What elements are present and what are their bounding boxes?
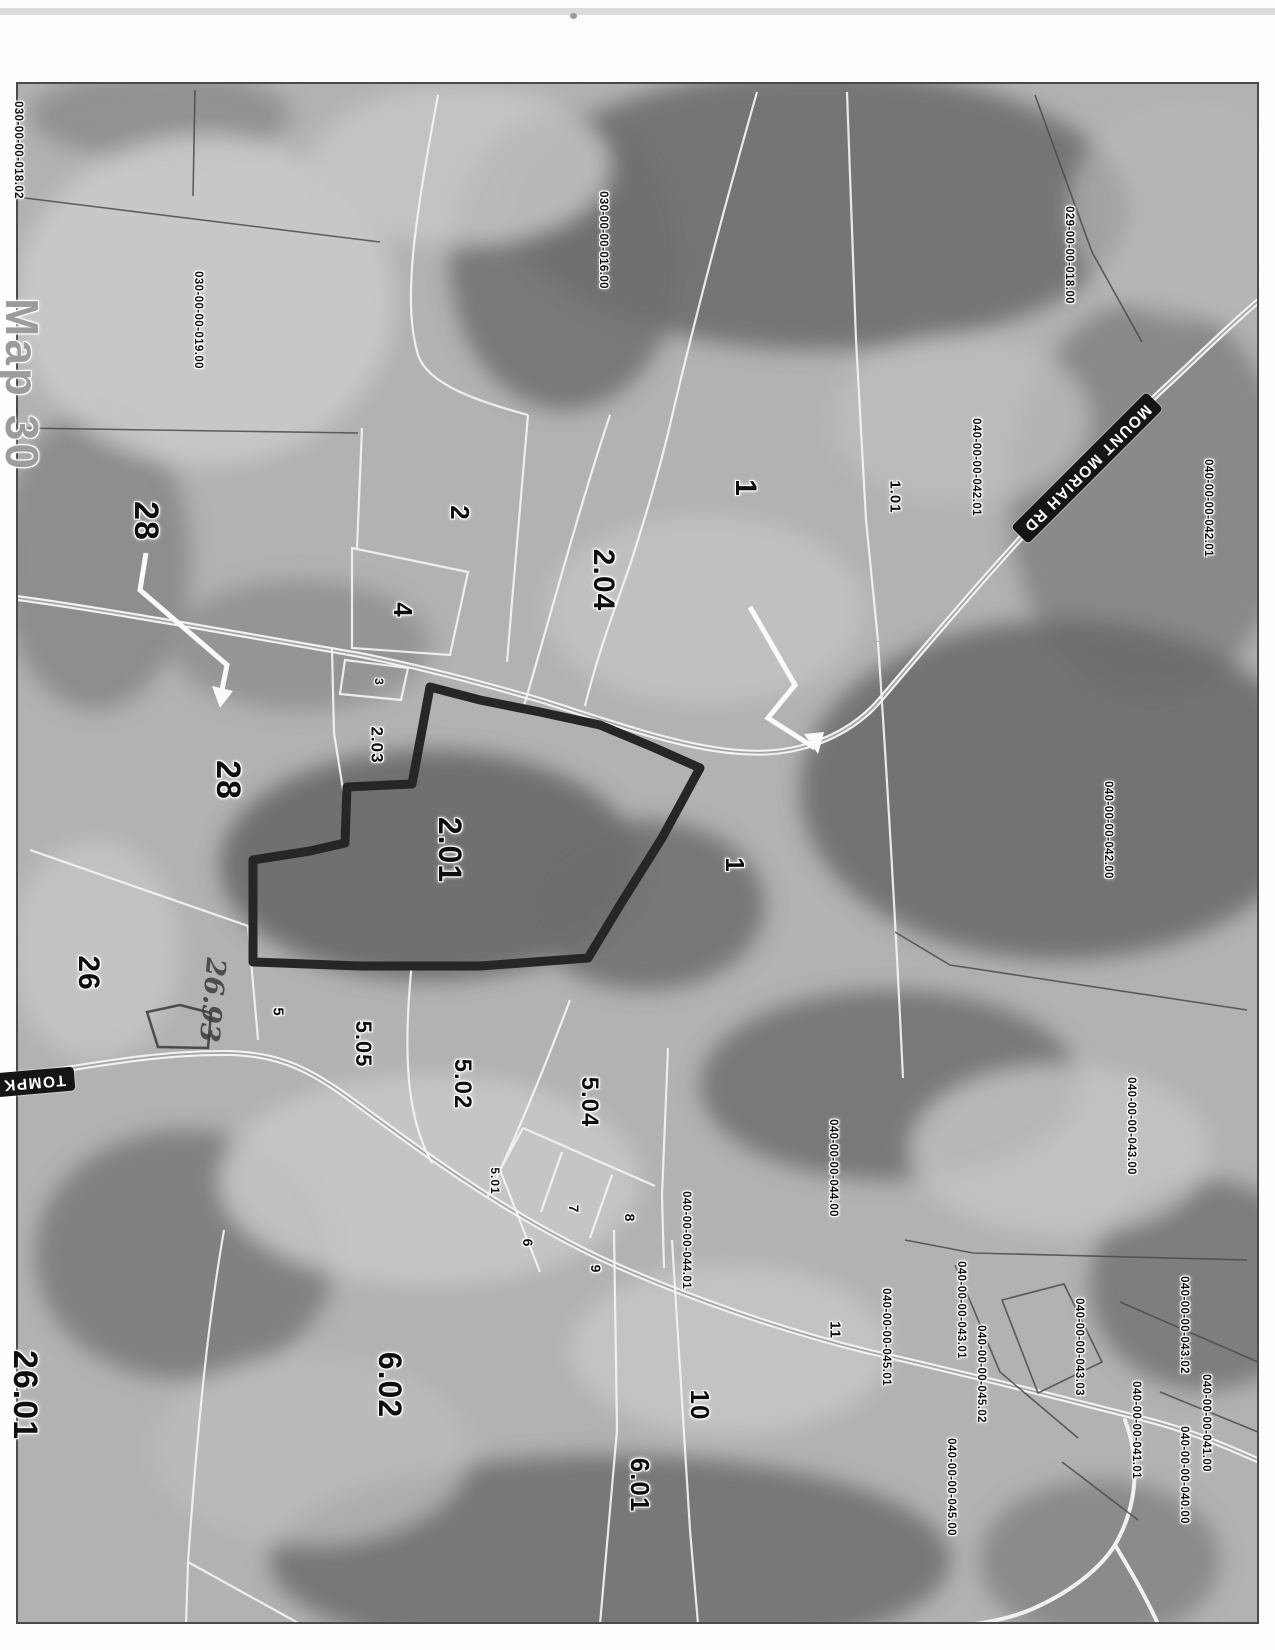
parcel-number-26: 26 [73,955,103,990]
parcel-id-040-00-00-045-00: 040-00-00-045.00 [944,1438,956,1536]
parcel-id-040-00-00-043-00: 040-00-00-043.00 [1124,1077,1136,1175]
parcel-number-2-03: 2.03 [369,726,386,763]
parcel-id-030-00-00-019-00: 030-00-00-019.00 [191,271,203,369]
parcel-number-5-01: 5.01 [489,1167,501,1194]
parcel-number-2-01: 2.01 [434,817,466,883]
parcel-number-7: 7 [567,1205,581,1214]
parcel-number-11: 11 [828,1321,843,1339]
parcel-number-26-01: 26.01 [8,1350,42,1440]
parcel-number-6-02: 6.02 [374,1352,406,1418]
parcel-id-040-00-00-041-01: 040-00-00-041.01 [1129,1381,1141,1479]
parcel-number-8: 8 [623,1214,637,1223]
parcel-id-040-00-00-040-00: 040-00-00-040.00 [1177,1426,1189,1524]
aerial-photo-map [0,0,1275,1650]
map-sheet-title: Map 30 [0,298,49,472]
parcel-number-5-05: 5.05 [352,1021,374,1068]
parcel-id-030-00-00-016-00: 030-00-00-016.00 [596,191,608,289]
parcel-id-040-00-00-042-00: 040-00-00-042.00 [1101,781,1113,879]
parcel-number-3: 3 [373,678,385,686]
parcel-number-5-02: 5.02 [450,1059,474,1110]
parcel-number-4: 4 [390,602,416,617]
parcel-id-040-00-00-045-01: 040-00-00-045.01 [879,1288,891,1386]
parcel-number-1-01: 1.01 [888,480,903,513]
parcel-id-040-00-00-044-01: 040-00-00-044.01 [679,1191,691,1289]
parcel-id-040-00-00-042-01: 040-00-00-042.01 [1201,459,1213,557]
parcel-id-040-00-00-043-02: 040-00-00-043.02 [1177,1276,1189,1374]
parcel-number-1: 1 [722,857,748,872]
parcel-id-040-00-00-042-01: 040-00-00-042.01 [969,418,981,516]
parcel-id-040-00-00-045-02: 040-00-00-045.02 [974,1325,986,1423]
parcel-number-2-04: 2.04 [588,549,618,611]
parcel-number-28: 28 [129,501,163,541]
parcel-number-5: 5 [271,1007,286,1016]
parcel-number-1: 1 [730,479,760,497]
parcel-id-040-00-00-043-01: 040-00-00-043.01 [954,1261,966,1359]
parcel-number-28: 28 [211,760,245,800]
scanned-parcel-map-page: Map 30 MOUNT MORIAH RD TOMPK 26.93 030-0… [0,0,1275,1650]
parcel-number-6: 6 [521,1239,535,1248]
parcel-number-10: 10 [687,1390,713,1421]
parcel-id-040-00-00-041-00: 040-00-00-041.00 [1199,1374,1211,1472]
parcel-id-040-00-00-043-03: 040-00-00-043.03 [1072,1298,1084,1396]
parcel-number-9: 9 [589,1265,603,1274]
parcel-number-6-01: 6.01 [627,1458,653,1513]
parcel-id-029-00-00-018-00: 029-00-00-018.00 [1062,206,1074,304]
parcel-number-5-04: 5.04 [577,1077,601,1128]
parcel-id-040-00-00-044-00: 040-00-00-044.00 [826,1119,838,1217]
parcel-number-2: 2 [447,505,473,520]
parcel-id-030-00-00-018-02: 030-00-00-018.02 [11,101,23,199]
